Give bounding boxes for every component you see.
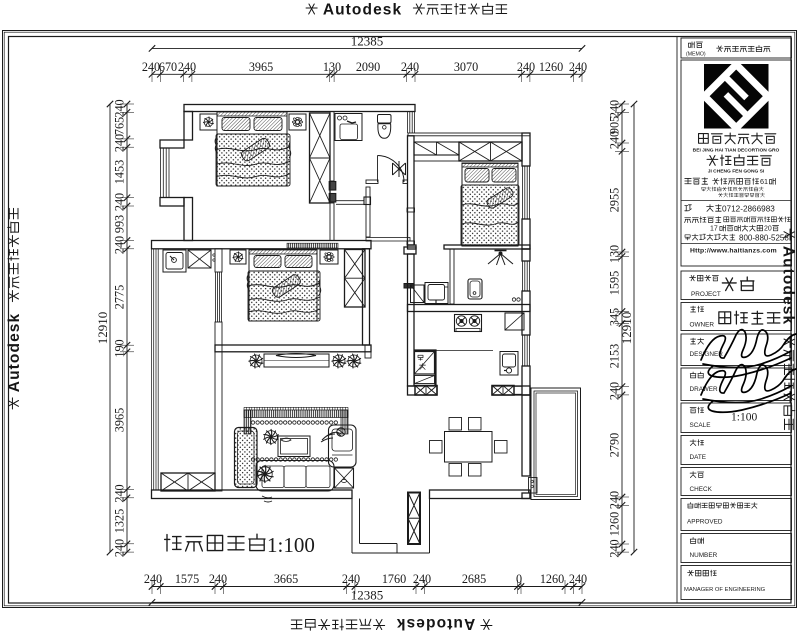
svg-text:12385: 12385: [351, 34, 384, 49]
svg-text:PROJECT: PROJECT: [691, 291, 721, 298]
svg-text:240: 240: [608, 539, 622, 557]
svg-text:12910: 12910: [619, 312, 634, 345]
svg-text:240: 240: [113, 193, 127, 211]
svg-text:61: 61: [760, 177, 768, 186]
svg-text:OWNER: OWNER: [690, 322, 715, 329]
svg-text:(MEMO): (MEMO): [686, 52, 706, 58]
svg-text:240: 240: [113, 134, 127, 152]
svg-text:1260: 1260: [539, 60, 563, 74]
svg-text:20: 20: [764, 226, 772, 233]
svg-text:240: 240: [113, 236, 127, 254]
svg-text:130: 130: [608, 245, 622, 263]
svg-text:1453: 1453: [113, 160, 127, 184]
svg-text:2685: 2685: [462, 572, 486, 586]
svg-text:190: 190: [113, 339, 127, 357]
svg-text:240: 240: [569, 60, 587, 74]
svg-text:240: 240: [113, 99, 127, 117]
svg-text:MANAGER OF ENGINEERING: MANAGER OF ENGINEERING: [684, 587, 766, 593]
svg-text:240: 240: [142, 60, 160, 74]
svg-text:Autodesk: Autodesk: [396, 615, 475, 632]
svg-text:12910: 12910: [95, 312, 110, 345]
svg-text:240: 240: [401, 60, 419, 74]
svg-text:2153: 2153: [608, 344, 622, 368]
svg-text:240: 240: [342, 572, 360, 586]
svg-text:2775: 2775: [113, 285, 127, 309]
svg-text:2090: 2090: [356, 60, 380, 74]
svg-text:2790: 2790: [608, 433, 622, 457]
svg-text:1575: 1575: [175, 572, 199, 586]
svg-text:Http://www.haitianzs.com: Http://www.haitianzs.com: [690, 248, 777, 255]
svg-text:0: 0: [516, 572, 522, 586]
svg-text:3665: 3665: [274, 572, 298, 586]
svg-text:1260: 1260: [608, 512, 622, 536]
svg-text:240: 240: [517, 60, 535, 74]
svg-text:1595: 1595: [608, 271, 622, 295]
svg-text:DATE: DATE: [690, 454, 707, 461]
svg-text:130: 130: [323, 60, 341, 74]
svg-text:240: 240: [113, 539, 127, 557]
svg-text:1760: 1760: [382, 572, 406, 586]
svg-text:SCALE: SCALE: [690, 422, 711, 429]
svg-text:240: 240: [608, 382, 622, 400]
svg-text:240: 240: [608, 491, 622, 509]
svg-text:240: 240: [608, 100, 622, 118]
svg-text:1260: 1260: [540, 572, 564, 586]
svg-text:1:100: 1:100: [267, 533, 315, 557]
svg-text:3965: 3965: [249, 60, 273, 74]
svg-text:DESIGNER: DESIGNER: [690, 351, 724, 358]
svg-text:1:100: 1:100: [731, 412, 757, 424]
svg-text:BEI JING HAI TIAN DECORTION GR: BEI JING HAI TIAN DECORTION GRO: [693, 148, 780, 154]
svg-text:3070: 3070: [454, 60, 478, 74]
svg-text:240: 240: [413, 572, 431, 586]
svg-text:1325: 1325: [113, 509, 127, 533]
svg-text:240: 240: [209, 572, 227, 586]
svg-text:CHECK: CHECK: [690, 486, 713, 493]
svg-text:NUMBER: NUMBER: [690, 552, 718, 559]
svg-text:765: 765: [113, 117, 127, 135]
svg-text:APPROVED: APPROVED: [687, 519, 723, 526]
svg-text:3965: 3965: [113, 408, 127, 432]
svg-text:2955: 2955: [608, 188, 622, 212]
svg-text:Autodesk: Autodesk: [6, 313, 23, 392]
svg-text:0712-2866983: 0712-2866983: [722, 205, 775, 214]
svg-text:240: 240: [608, 131, 622, 149]
svg-text:JI CHENG FEN GONG SI: JI CHENG FEN GONG SI: [708, 169, 765, 175]
svg-text:Autodesk: Autodesk: [780, 246, 797, 325]
svg-text:240: 240: [569, 572, 587, 586]
svg-text:240: 240: [113, 484, 127, 502]
svg-text:800-880-5258: 800-880-5258: [739, 234, 789, 243]
svg-text:993: 993: [113, 215, 127, 233]
svg-text:17: 17: [710, 226, 718, 233]
svg-text:670: 670: [159, 60, 177, 74]
svg-text:12385: 12385: [351, 588, 384, 603]
svg-text:Autodesk: Autodesk: [323, 1, 402, 18]
svg-text:240: 240: [178, 60, 196, 74]
svg-text:240: 240: [144, 572, 162, 586]
